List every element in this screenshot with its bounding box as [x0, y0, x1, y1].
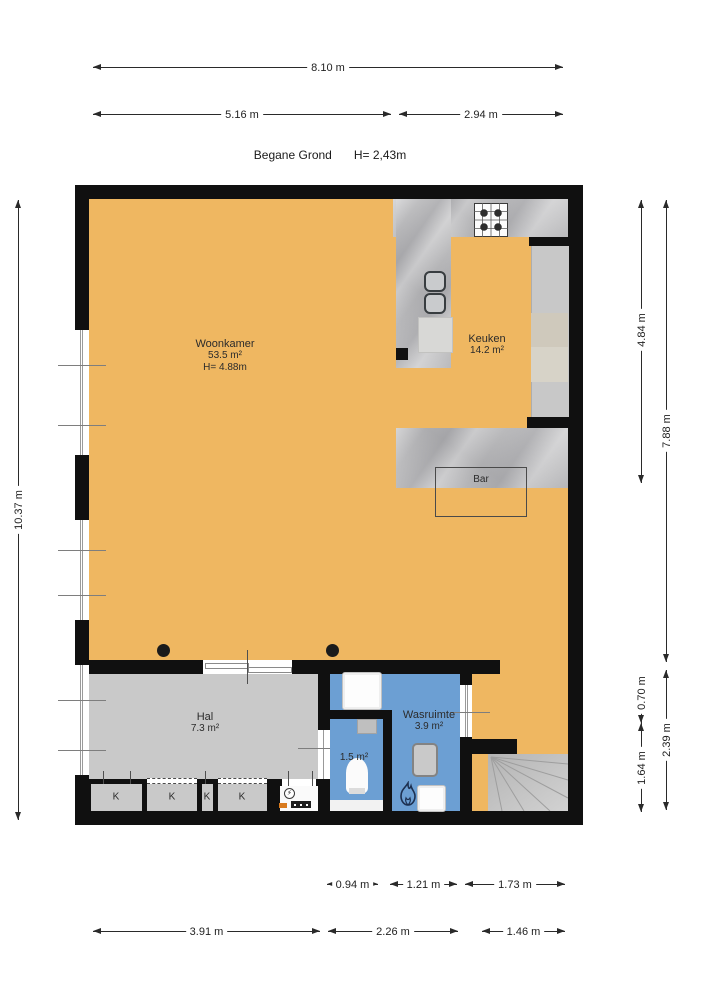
sliding-door-panel — [205, 663, 249, 669]
dim-bottom-upper-2: 1.21 m — [390, 884, 457, 885]
arrow-right-icon — [557, 881, 565, 887]
wall-hall-top — [89, 660, 500, 674]
column-dot — [326, 644, 339, 657]
arrow-left-icon — [399, 111, 407, 117]
room-name: Keuken — [427, 333, 547, 345]
arrow-down-icon — [638, 475, 644, 483]
room-area: 14.2 m² — [427, 345, 547, 357]
arrow-up-icon — [663, 670, 669, 678]
arrow-right-icon — [450, 928, 458, 934]
arrow-up-icon — [638, 200, 644, 208]
dim-label: 3.91 m — [186, 926, 228, 938]
room-area: 7.3 m² — [145, 723, 265, 735]
wall-laundry-right-top — [460, 660, 472, 685]
arrow-down-icon — [638, 715, 644, 723]
room-label-woonkamer: Woonkamer 53.5 m² H= 4.88m — [145, 338, 305, 374]
room-ceiling-height: H= 4.88m — [145, 362, 305, 374]
window-a — [75, 330, 89, 455]
dim-bottom-upper-3: 1.73 m — [465, 884, 565, 885]
door-tick — [312, 771, 313, 786]
closet-label: K — [239, 792, 246, 803]
window-b — [75, 520, 89, 620]
dim-label: 1.46 m — [503, 926, 545, 938]
dim-label: 0.94 m — [332, 879, 374, 891]
arrow-left-icon — [328, 928, 336, 934]
room-label-wasruimte: Wasruimte 3.9 m² — [379, 709, 479, 733]
window-tick — [58, 425, 106, 426]
arrow-left-icon — [465, 881, 473, 887]
fuse-dots — [294, 804, 296, 806]
dim-bottom-upper-1: 0.94 m — [327, 884, 378, 885]
column-dot — [157, 644, 170, 657]
arrow-down-icon — [663, 654, 669, 662]
floorplan-canvas: 8.10 m 5.16 m 2.94 m Begane GrondH= 2,43… — [0, 0, 707, 1000]
dryer-icon — [417, 785, 446, 812]
staircase — [488, 754, 568, 811]
bar-label: Bar — [436, 474, 526, 485]
fuse-panel-icon — [291, 801, 311, 808]
arrow-right-icon — [312, 928, 320, 934]
door-tick — [103, 771, 104, 784]
dim-label: 10.37 m — [13, 486, 25, 534]
page-title: Begane GrondH= 2,43m — [160, 148, 500, 162]
dim-label: 7.88 m — [661, 410, 673, 452]
arrow-down-icon — [15, 812, 21, 820]
dim-top-total: 8.10 m — [93, 67, 563, 68]
room-label-keuken: Keuken 14.2 m² — [427, 333, 547, 357]
boiler-icon — [412, 743, 438, 777]
door-tick — [288, 771, 289, 786]
arrow-left-icon — [390, 881, 398, 887]
gas-meter-icon — [279, 803, 287, 808]
arrow-down-icon — [663, 802, 669, 810]
floor-height: H= 2,43m — [354, 148, 406, 162]
dim-top-left: 5.16 m — [93, 114, 391, 115]
dim-label: 8.10 m — [307, 62, 349, 74]
window-glass — [80, 665, 83, 775]
wall-stub-stairs — [463, 739, 517, 754]
arrow-down-icon — [638, 804, 644, 812]
window-c — [75, 665, 89, 775]
closet-door-dashed — [147, 778, 197, 784]
arrow-left-icon — [93, 928, 101, 934]
closet-label: K — [113, 792, 120, 803]
hand-basin — [357, 719, 377, 734]
window-tick — [58, 550, 106, 551]
door-tick — [298, 748, 330, 749]
closet-door-dashed — [218, 778, 267, 784]
dim-left-total: 10.37 m — [18, 200, 19, 820]
dim-right-inner-mid: 0.70 m — [641, 681, 642, 723]
room-name: Hal — [145, 711, 265, 723]
arrow-left-icon — [93, 111, 101, 117]
sink-icon — [424, 271, 446, 292]
dim-label: 5.16 m — [221, 109, 263, 121]
arrow-right-icon — [557, 928, 565, 934]
dim-top-right: 2.94 m — [399, 114, 563, 115]
toilet-seat-line — [349, 788, 365, 794]
lightning-glyph: ⚡ — [287, 790, 292, 797]
column-post — [396, 348, 408, 360]
electric-meter-icon: ⚡ — [284, 788, 295, 799]
dim-right-outer-top: 7.88 m — [666, 200, 667, 662]
bar-outline: Bar — [435, 467, 527, 517]
wall-stub-kitchen-bottom — [527, 417, 568, 428]
room-label-toilet: 1.5 m² — [324, 752, 384, 764]
dim-right-inner-top: 4.84 m — [641, 200, 642, 483]
toilet-cistern — [330, 800, 383, 811]
window-tick — [58, 365, 106, 366]
window-glass — [80, 330, 83, 455]
window-tick — [58, 700, 106, 701]
dim-right-inner-bottom: 1.64 m — [641, 723, 642, 812]
arrow-right-icon — [555, 64, 563, 70]
window-glass — [80, 520, 83, 620]
sink-icon — [424, 293, 446, 314]
arrow-up-icon — [15, 200, 21, 208]
closet-label: K — [169, 792, 176, 803]
wall-top — [75, 185, 583, 199]
room-name: Woonkamer — [145, 338, 305, 350]
arrow-up-icon — [663, 200, 669, 208]
door-tick — [205, 771, 206, 784]
sliding-door-panel — [248, 667, 292, 673]
dim-label: 1.64 m — [636, 747, 648, 789]
closet-label: K — [204, 792, 211, 803]
dim-label: 0.70 m — [636, 672, 648, 714]
window-tick — [58, 595, 106, 596]
room-area: 1.5 m² — [324, 752, 384, 764]
dim-bottom-lower-3: 1.46 m — [482, 931, 565, 932]
arrow-right-icon — [383, 111, 391, 117]
door-tick — [130, 771, 131, 784]
room-area: 53.5 m² — [145, 350, 305, 362]
arrow-left-icon — [482, 928, 490, 934]
door-tick — [247, 650, 248, 684]
floor-name: Begane Grond — [254, 148, 332, 162]
dim-label: 1.21 m — [403, 879, 445, 891]
arrow-right-icon — [449, 881, 457, 887]
flame-icon — [396, 781, 420, 807]
dim-label: 1.73 m — [494, 879, 536, 891]
room-name: Wasruimte — [379, 709, 479, 721]
dim-label: 2.94 m — [460, 109, 502, 121]
wall-stub-kitchen-top — [529, 237, 568, 246]
arrow-left-icon — [93, 64, 101, 70]
dim-label: 4.84 m — [636, 309, 648, 351]
dim-label: 2.26 m — [372, 926, 414, 938]
wall-bottom — [75, 811, 583, 825]
dim-bottom-lower-1: 3.91 m — [93, 931, 320, 932]
room-label-hal: Hal 7.3 m² — [145, 711, 265, 735]
wall-right — [568, 185, 583, 825]
washing-machine-icon — [342, 672, 382, 710]
stove-icon — [474, 203, 508, 237]
arrow-up-icon — [638, 723, 644, 731]
window-tick — [58, 750, 106, 751]
room-area: 3.9 m² — [379, 721, 479, 733]
dim-right-outer-bottom: 2.39 m — [666, 670, 667, 810]
dim-bottom-lower-2: 2.26 m — [328, 931, 458, 932]
arrow-right-icon — [555, 111, 563, 117]
dim-label: 2.39 m — [661, 719, 673, 761]
